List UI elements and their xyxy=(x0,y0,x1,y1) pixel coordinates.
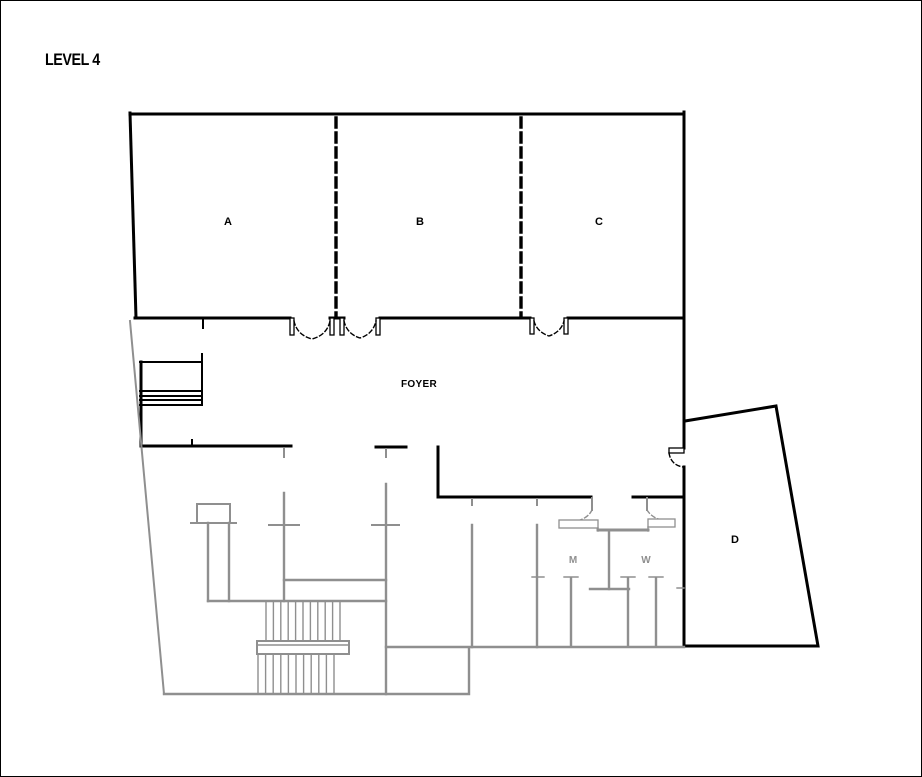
door-jamb xyxy=(530,318,534,334)
corridor-walls xyxy=(472,499,537,647)
room-d-outline xyxy=(684,406,818,646)
lower-level xyxy=(130,321,684,694)
room-a-label: A xyxy=(224,216,232,228)
floor-plan-drawing: A B C FOYER D M W xyxy=(1,1,922,777)
womens-restroom-label: W xyxy=(641,555,651,566)
door-jamb xyxy=(330,318,334,335)
stair-treads-upper xyxy=(266,602,340,641)
lower-west-boundary-slant xyxy=(130,321,164,694)
floor-plan-canvas: LEVEL 4 xyxy=(0,0,922,777)
door-d-jamb xyxy=(669,448,684,453)
double-door-swing-arc xyxy=(344,321,376,338)
upper-level-walls xyxy=(130,112,684,448)
stair-landing xyxy=(257,641,349,654)
lower-south-boundary xyxy=(164,647,684,694)
double-door-swing-arc xyxy=(294,321,330,339)
stair-hall-walls xyxy=(191,449,399,694)
room-b-label: B xyxy=(416,216,424,228)
restroom-vestibule xyxy=(559,498,675,589)
hall-west-wall xyxy=(130,113,136,318)
foyer-walls xyxy=(140,354,684,497)
privacy-screen xyxy=(648,519,675,527)
door-jamb xyxy=(564,318,568,334)
stair-treads-lower xyxy=(258,654,334,694)
mens-restroom-label: M xyxy=(569,555,577,566)
room-labels: A B C FOYER D M W xyxy=(224,216,739,566)
room-d-label: D xyxy=(731,534,739,546)
door-d-swing-arc xyxy=(669,453,683,467)
room-doors xyxy=(290,318,568,339)
foyer-label: FOYER xyxy=(401,379,437,390)
double-door-swing-arc xyxy=(534,321,564,336)
foyer-steps xyxy=(140,354,202,405)
privacy-screen xyxy=(559,520,598,528)
room-c-label: C xyxy=(595,216,603,228)
staircase xyxy=(257,602,349,694)
room-d-walls xyxy=(669,406,818,646)
